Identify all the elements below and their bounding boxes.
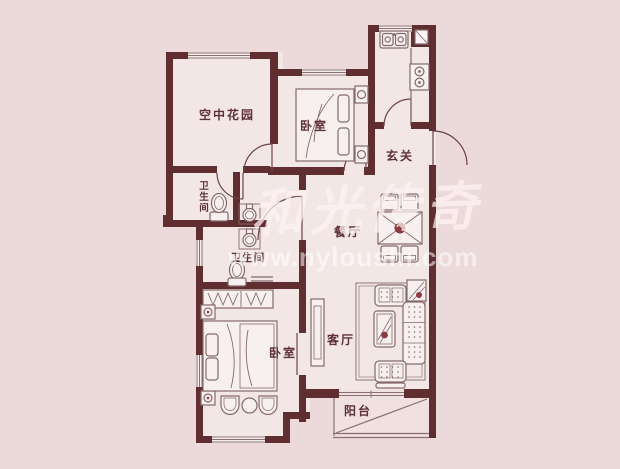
- label-balcony: 阳台: [344, 403, 372, 418]
- label-sky-garden: 空中花园: [199, 107, 255, 122]
- coffee-table: [374, 311, 395, 347]
- armchair-top: [375, 285, 406, 306]
- tub-chair: [259, 396, 277, 415]
- window-garden-top: [188, 52, 250, 59]
- watermark-calligraphy: 和光传奇: [250, 176, 484, 245]
- label-living-room: 客厅: [326, 332, 355, 347]
- round-table: [242, 398, 257, 413]
- toilet-1: [210, 194, 228, 222]
- bed-bottom: [203, 321, 277, 391]
- label-bathroom-1: 卫 生 间: [199, 181, 209, 214]
- nightstand-bottom-1: [201, 305, 215, 319]
- tub-chair: [221, 396, 239, 415]
- svg-text:卫: 卫: [199, 181, 209, 192]
- svg-text:生: 生: [199, 191, 209, 203]
- window-bedroom2-bottom: [212, 436, 265, 443]
- wall-garden-bedroom-divider: [270, 52, 278, 144]
- watermark-url: www.nyloushi.com: [227, 242, 479, 272]
- floor-plan-canvas: 空中花园 卧室 玄关 卫 生 间 餐厅 卫生间 卧室 客厅 阳台 和光传奇 ww…: [0, 0, 620, 469]
- label-entry-hall: 玄关: [386, 148, 414, 163]
- kitchen-sink: [380, 31, 408, 48]
- nightstand-top-2: [355, 146, 368, 163]
- nightstand-bottom-2: [201, 391, 215, 405]
- kitchen-stove: [410, 64, 429, 90]
- label-bedroom-top: 卧室: [300, 118, 328, 133]
- window-bathroom2-left: [196, 240, 203, 266]
- side-table: [407, 280, 426, 301]
- door-entrance: [433, 131, 467, 165]
- label-bedroom-bottom: 卧室: [269, 345, 297, 360]
- floor-plan-drawing: 空中花园 卧室 玄关 卫 生 间 餐厅 卫生间 卧室 客厅 阳台 和光传奇 ww…: [0, 0, 620, 469]
- armchair-bottom: [375, 361, 406, 388]
- nightstand-top-1: [355, 86, 368, 103]
- svg-text:间: 间: [199, 202, 209, 214]
- window-bedroom2-left: [196, 355, 203, 387]
- sofa-long: [403, 302, 425, 364]
- tv-cabinet: [311, 299, 324, 366]
- window-bedroom-top: [302, 69, 346, 76]
